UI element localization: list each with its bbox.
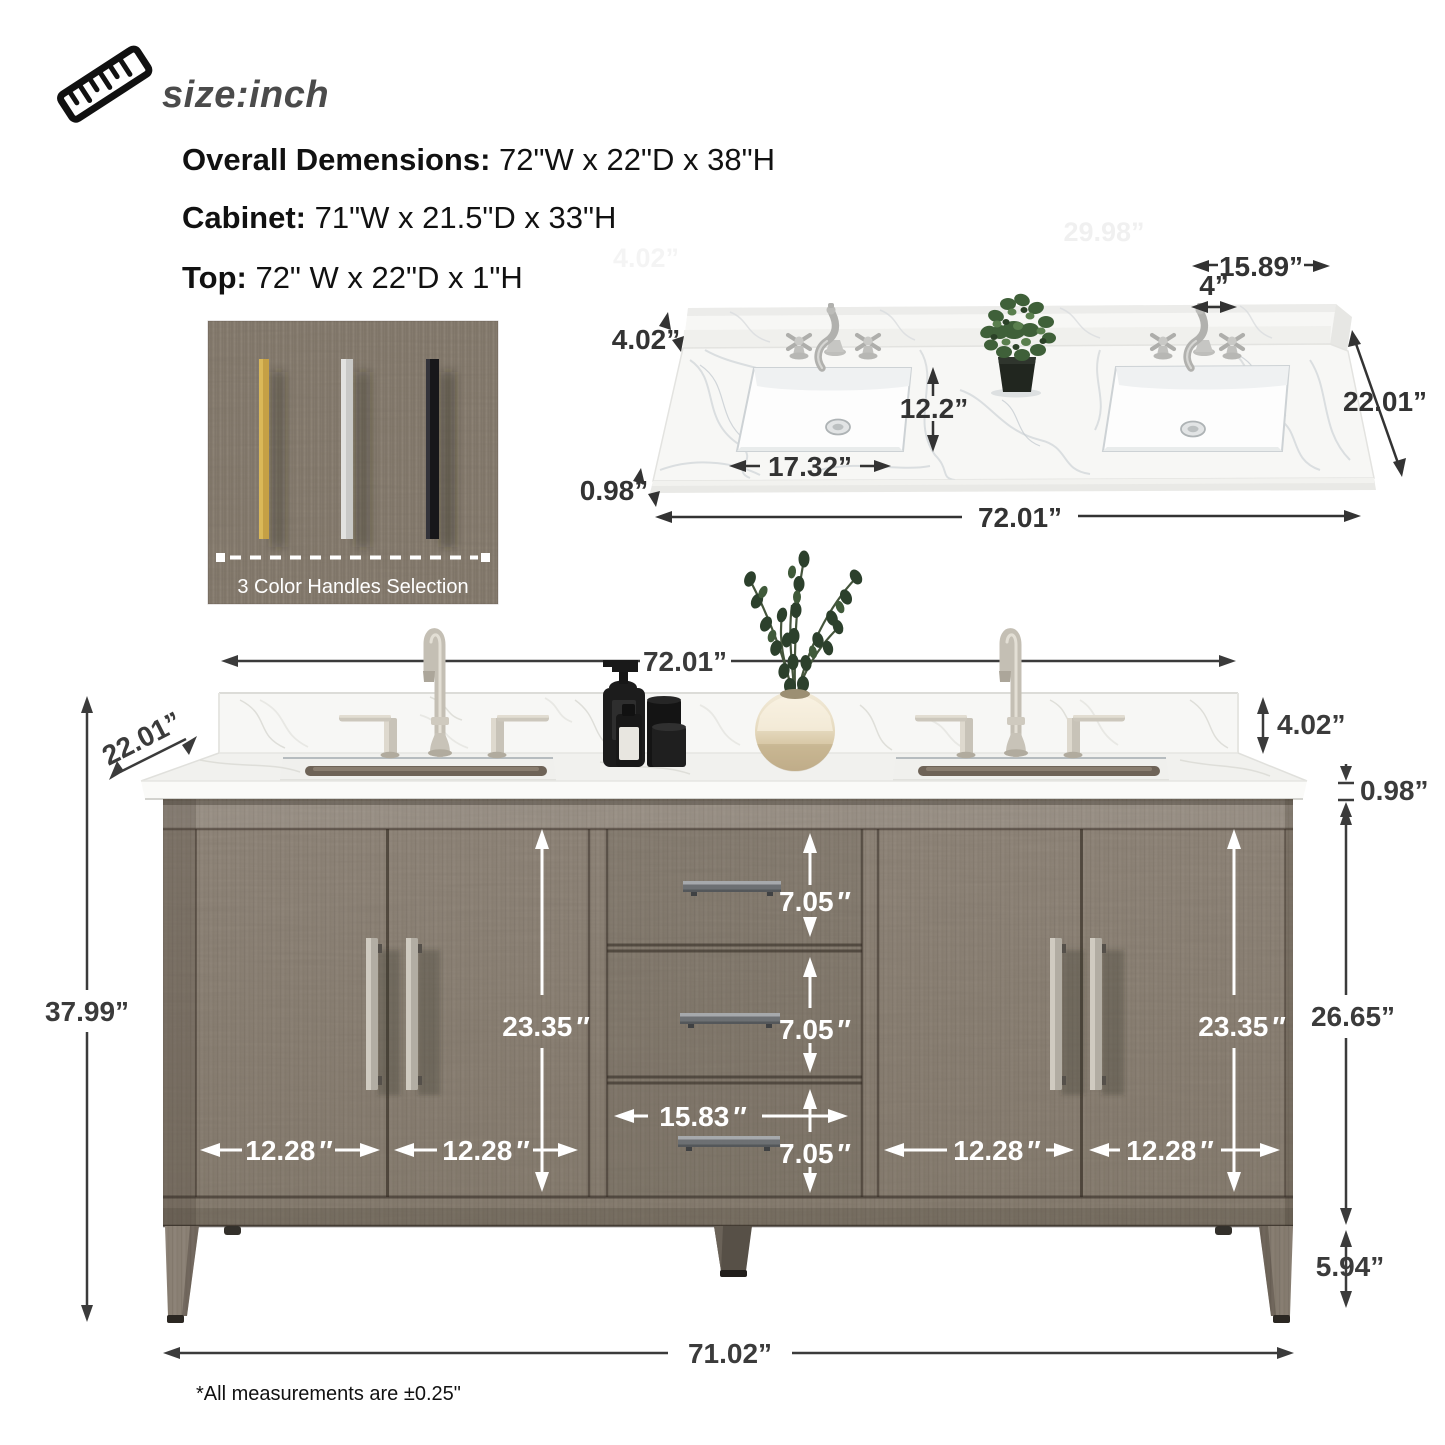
svg-text:7.05″: 7.05″: [779, 886, 851, 917]
svg-text:26.65”: 26.65”: [1311, 1001, 1395, 1032]
svg-text:7.05″: 7.05″: [779, 1138, 851, 1169]
svg-text:37.99”: 37.99”: [45, 996, 129, 1027]
svg-text:15.89”: 15.89”: [1219, 251, 1303, 282]
svg-text:0.98”: 0.98”: [1360, 775, 1429, 806]
svg-text:23.35″: 23.35″: [1198, 1011, 1286, 1042]
svg-text:15.83″: 15.83″: [659, 1101, 747, 1132]
svg-text:22.01”: 22.01”: [1343, 386, 1427, 417]
svg-text:4.02”: 4.02”: [613, 243, 679, 273]
svg-text:5.94”: 5.94”: [1316, 1251, 1385, 1282]
svg-text:12.28″: 12.28″: [245, 1135, 333, 1166]
svg-text:72.01”: 72.01”: [978, 502, 1062, 533]
svg-text:12.28″: 12.28″: [442, 1135, 530, 1166]
svg-text:3 Color Handles Selection: 3 Color Handles Selection: [237, 576, 468, 598]
svg-text:Overall Demensions: 72"W x 22": Overall Demensions: 72"W x 22"D x 38"H: [182, 142, 775, 177]
svg-text:12.28″: 12.28″: [1126, 1135, 1214, 1166]
svg-text:4”: 4”: [1199, 270, 1229, 301]
svg-text:72.01”: 72.01”: [643, 646, 727, 677]
svg-text:29.98”: 29.98”: [1063, 217, 1144, 247]
svg-text:4.02”: 4.02”: [1277, 709, 1346, 740]
svg-text:7.05″: 7.05″: [779, 1014, 851, 1045]
svg-text:23.35″: 23.35″: [502, 1011, 590, 1042]
svg-text:Cabinet: 71"W x 21.5"D x 33"H: Cabinet: 71"W x 21.5"D x 33"H: [182, 200, 616, 235]
svg-text:71.02”: 71.02”: [688, 1338, 772, 1369]
svg-text:17.32”: 17.32”: [768, 451, 852, 482]
svg-text:size:inch: size:inch: [162, 74, 329, 116]
svg-text:*All measurements are ±0.25": *All measurements are ±0.25": [196, 1383, 461, 1405]
svg-text:Top: 72" W x 22"D x 1"H: Top: 72" W x 22"D x 1"H: [182, 260, 523, 295]
svg-text:12.28″: 12.28″: [953, 1135, 1041, 1166]
svg-text:12.2”: 12.2”: [900, 393, 969, 424]
